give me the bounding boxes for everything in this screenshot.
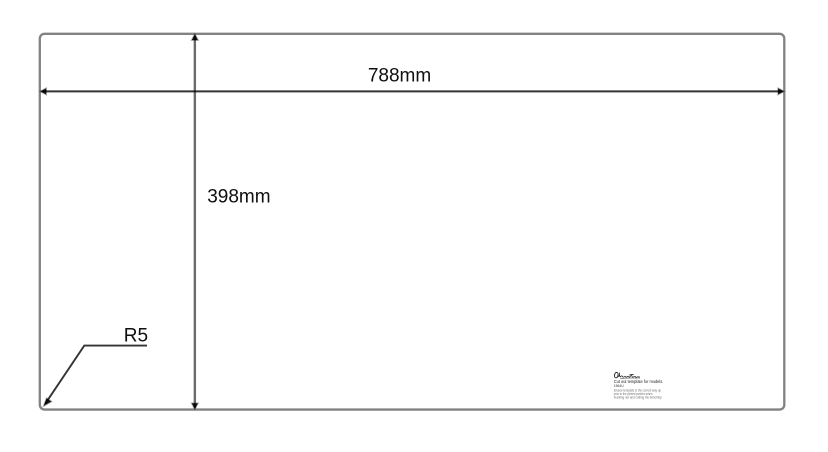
svg-text:788mm: 788mm bbox=[368, 66, 431, 87]
svg-text:1564U: 1564U bbox=[614, 383, 624, 388]
svg-text:marking out and cutting the be: marking out and cutting the benchtop bbox=[614, 396, 662, 400]
svg-text:398mm: 398mm bbox=[207, 187, 270, 208]
svg-text:R5: R5 bbox=[124, 326, 148, 347]
